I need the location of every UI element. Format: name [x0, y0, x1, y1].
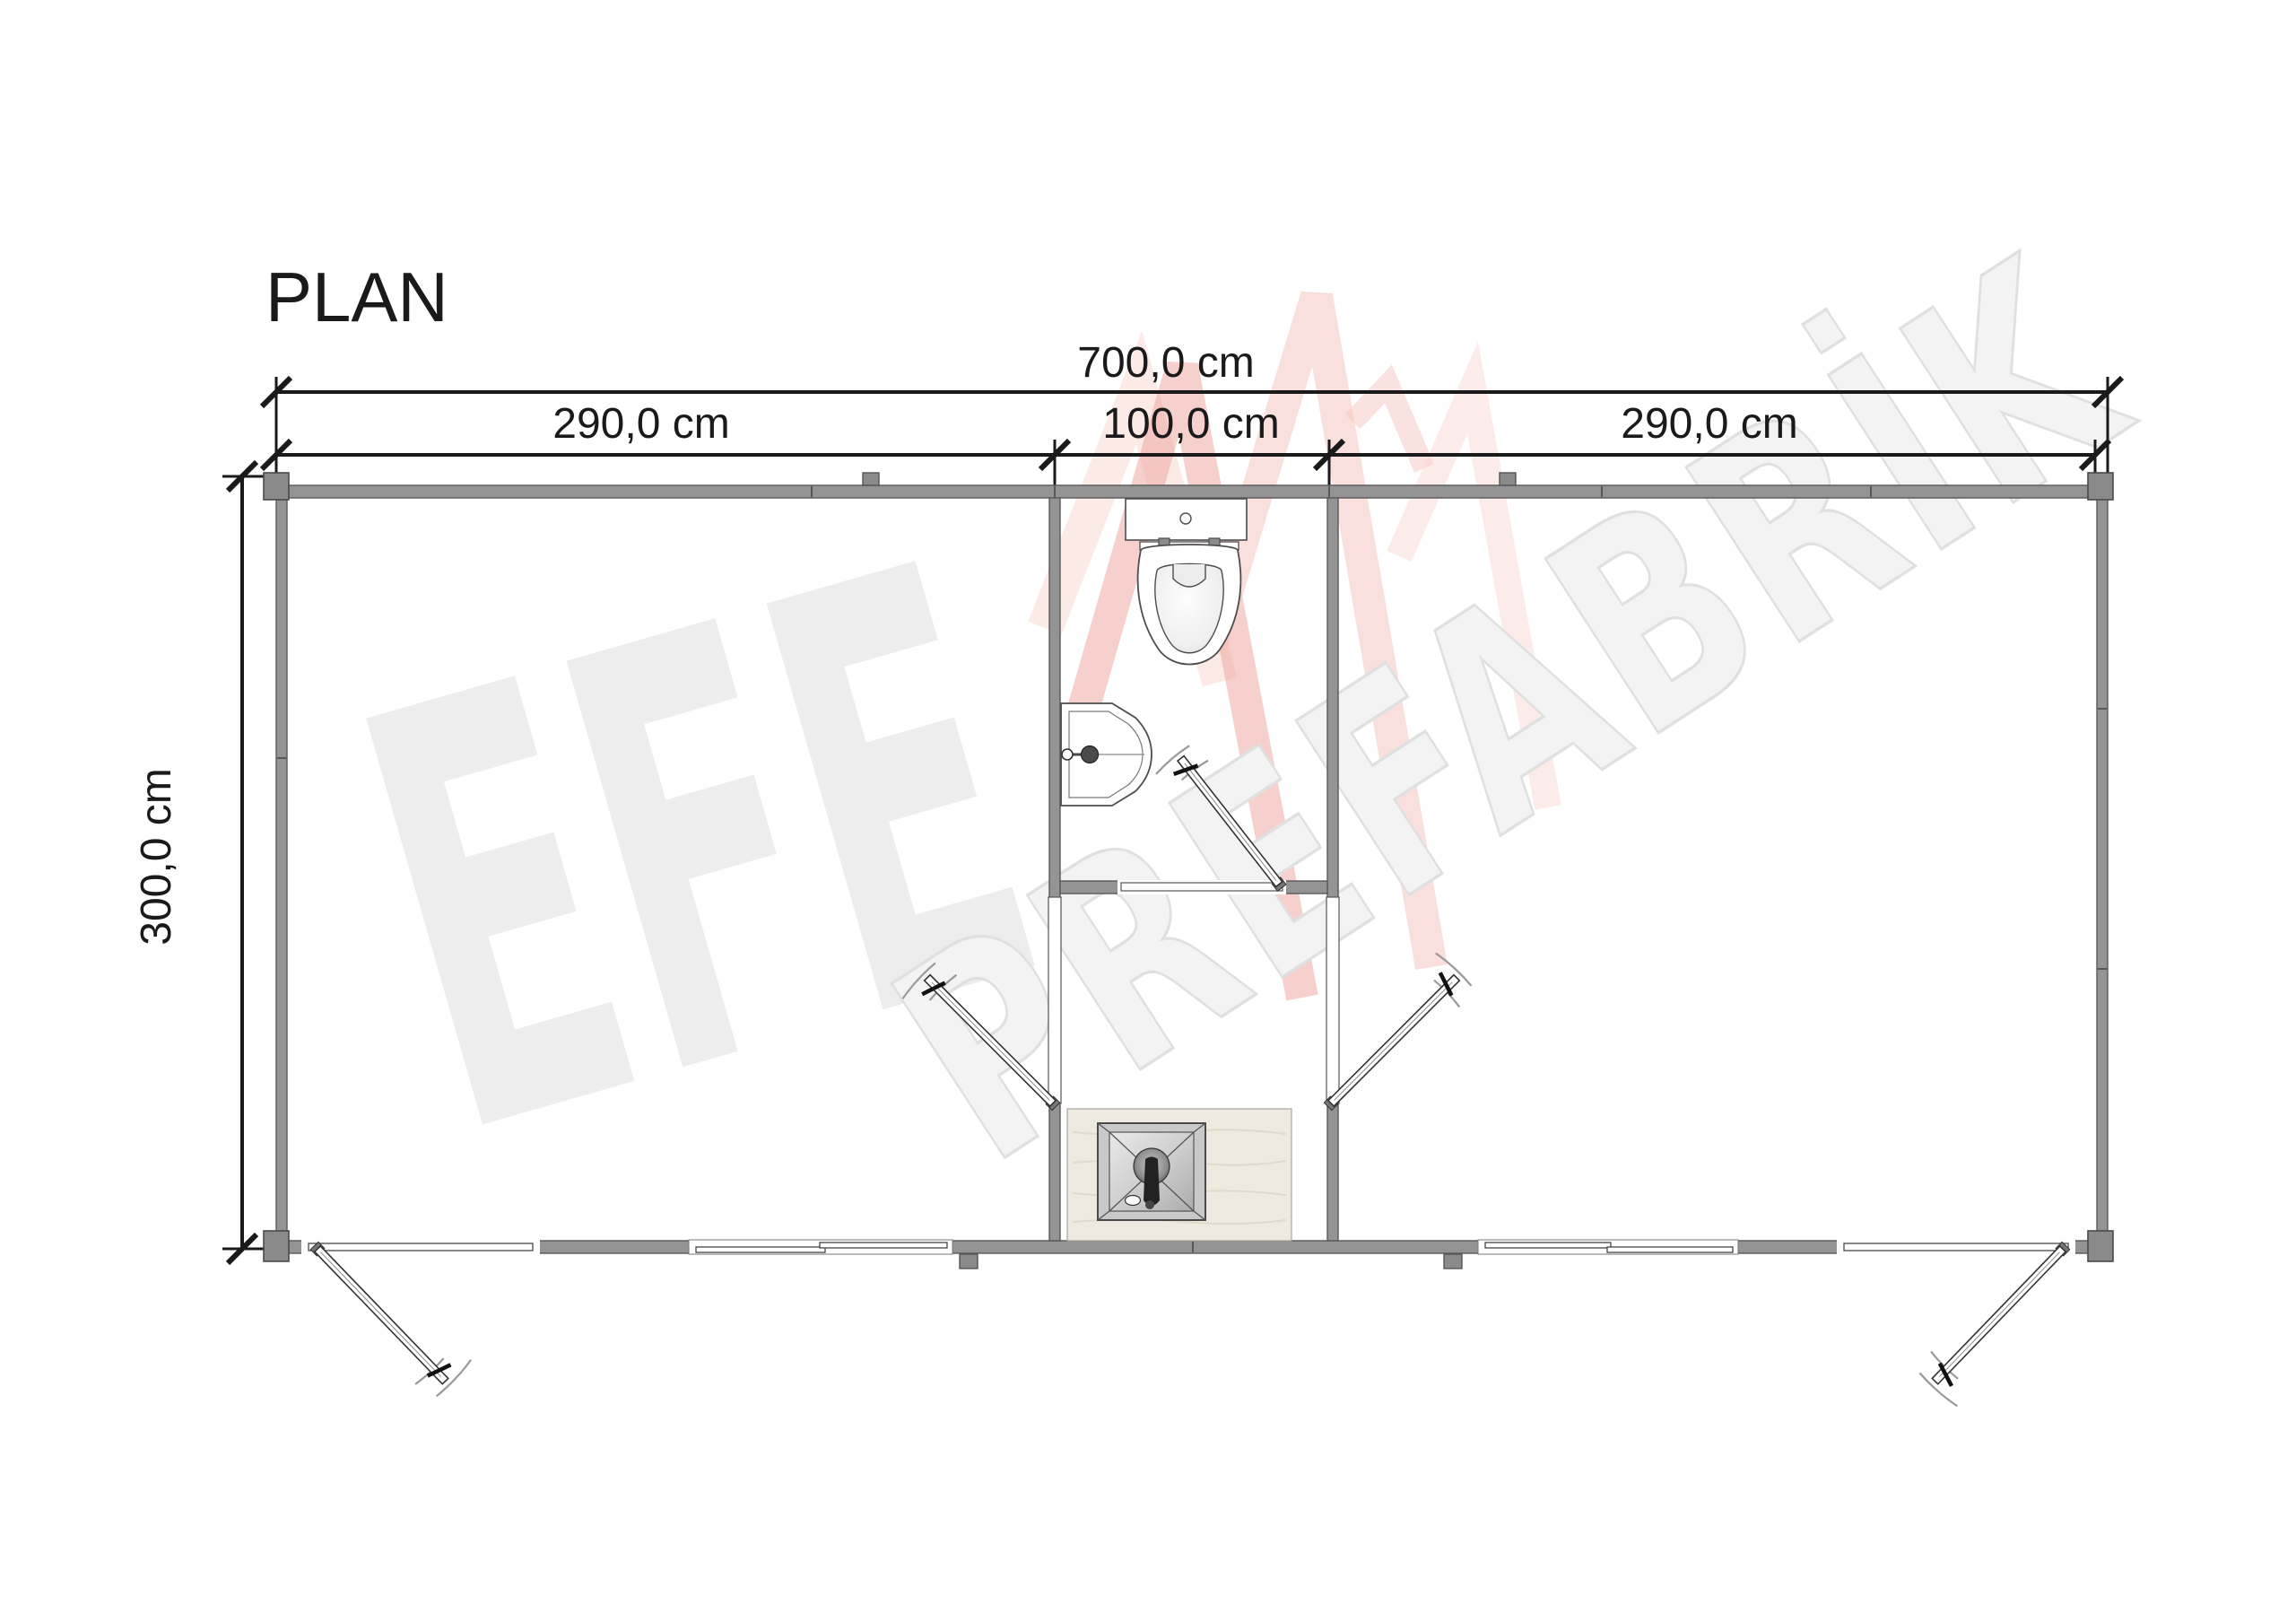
- left-window-sash: [820, 1243, 947, 1248]
- bathroom-left-partition-wall: [1049, 498, 1060, 1241]
- vent-cap-right-icon: [1500, 473, 1516, 485]
- vent-cap-left-icon: [863, 473, 879, 485]
- toilet-flush-notch: [1173, 564, 1205, 587]
- foundation-foot-left-icon: [960, 1254, 978, 1269]
- bottom-left-corner-post: [264, 1231, 289, 1261]
- left-exterior-wall: [276, 485, 287, 1253]
- right-window-sash: [1485, 1243, 1611, 1248]
- right-window-sash: [1607, 1247, 1733, 1252]
- foundation-foot-right-icon: [1444, 1254, 1462, 1269]
- faucet-icon: [1082, 746, 1099, 763]
- bottom-right-corner-post: [2088, 1231, 2113, 1261]
- right-door-threshold: [1844, 1243, 2068, 1251]
- shower-drain-cap-icon: [1145, 1200, 1154, 1209]
- floor-plan-drawing: EFE PREFABRİK PLAN 700,0 cm 290,0 cm 100…: [0, 0, 2296, 1622]
- flush-button-icon: [1180, 513, 1191, 524]
- right-section-label: 290,0 cm: [1621, 400, 1797, 448]
- right-partition-door-opening: [1326, 897, 1339, 1103]
- left-section-label: 290,0 cm: [552, 400, 729, 448]
- page-title: PLAN: [265, 257, 448, 336]
- shower-drain-icon: [1126, 1196, 1141, 1206]
- right-exterior-wall: [2097, 485, 2108, 1253]
- middle-section-label: 100,0 cm: [1102, 400, 1279, 448]
- top-left-corner-post: [264, 473, 289, 500]
- top-right-corner-post: [2088, 473, 2113, 500]
- faucet-knob-icon: [1062, 749, 1073, 760]
- shower-area: [1067, 1109, 1291, 1241]
- shower-handle-icon: [1144, 1157, 1160, 1207]
- left-window-sash: [696, 1247, 825, 1252]
- bathroom-door-threshold: [1121, 883, 1283, 891]
- depth-label: 300,0 cm: [133, 768, 180, 945]
- left-partition-door-opening: [1048, 897, 1061, 1103]
- floor-plan-sheet: EFE PREFABRİK PLAN 700,0 cm 290,0 cm 100…: [0, 0, 2296, 1622]
- top-exterior-wall: [276, 485, 2108, 498]
- total-width-label: 700,0 cm: [1077, 339, 1254, 387]
- left-door-threshold: [309, 1243, 533, 1251]
- bathroom-right-partition-wall: [1327, 498, 1338, 1241]
